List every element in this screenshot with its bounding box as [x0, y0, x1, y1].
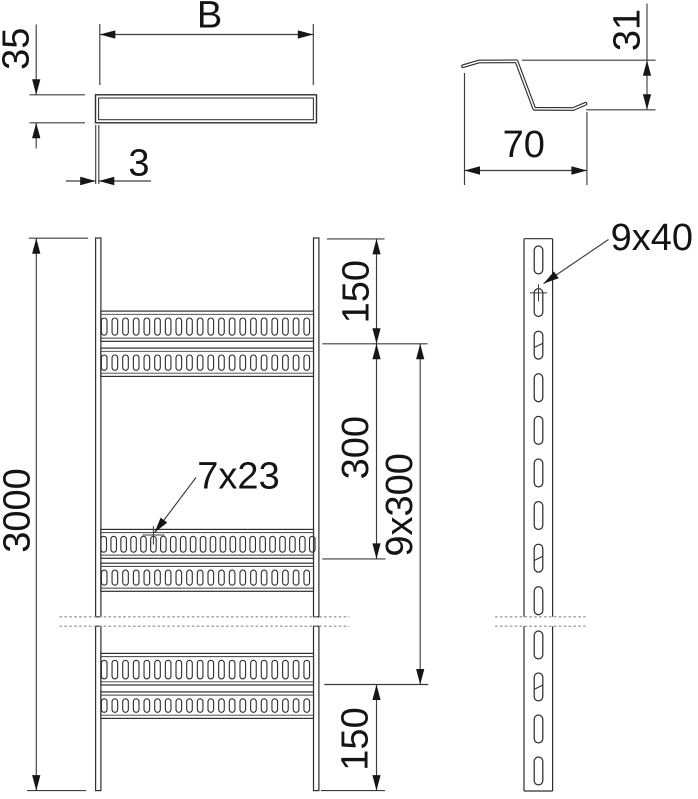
svg-text:B: B [197, 0, 222, 37]
svg-text:3: 3 [128, 143, 149, 185]
svg-text:7x23: 7x23 [197, 456, 279, 498]
svg-text:300: 300 [335, 416, 377, 479]
svg-text:9x40: 9x40 [611, 217, 693, 259]
svg-text:31: 31 [607, 9, 649, 51]
svg-text:35: 35 [0, 28, 38, 70]
svg-text:9x300: 9x300 [379, 453, 421, 557]
svg-text:70: 70 [503, 124, 545, 166]
svg-text:3000: 3000 [0, 468, 39, 553]
svg-text:150: 150 [335, 260, 377, 323]
svg-text:150: 150 [335, 707, 377, 770]
